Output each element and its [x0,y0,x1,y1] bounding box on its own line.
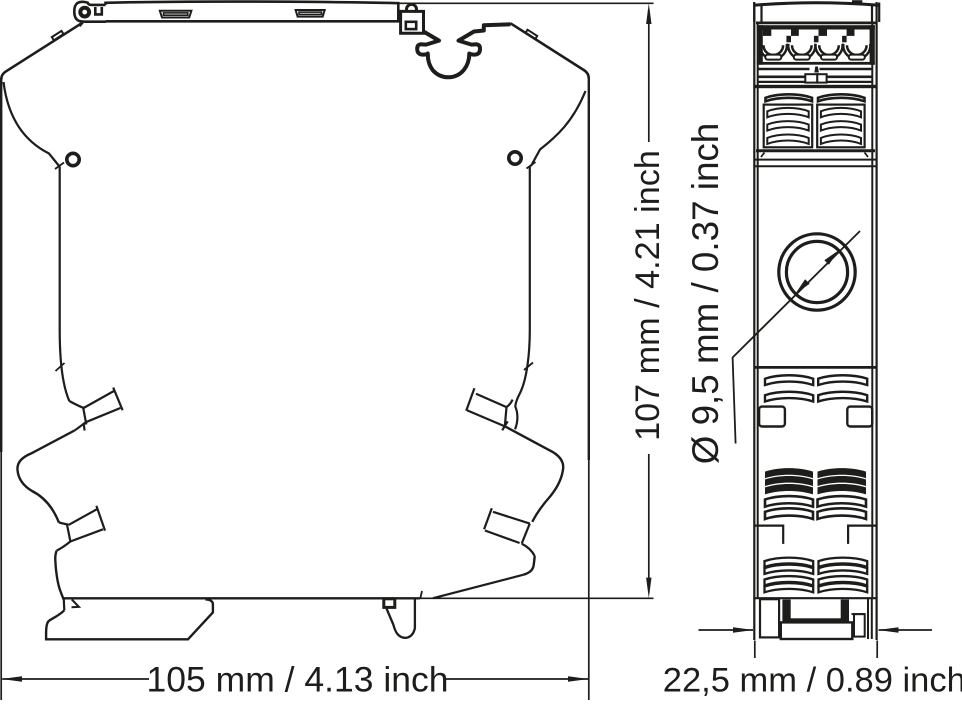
svg-text:107 mm / 4.21 inch: 107 mm / 4.21 inch [629,150,667,441]
svg-text:Ø 9,5 mm / 0.37 inch: Ø 9,5 mm / 0.37 inch [685,123,726,465]
svg-text:22,5 mm / 0.89 inch: 22,5 mm / 0.89 inch [663,662,962,700]
svg-text:105 mm / 4.13 inch: 105 mm / 4.13 inch [147,660,449,700]
